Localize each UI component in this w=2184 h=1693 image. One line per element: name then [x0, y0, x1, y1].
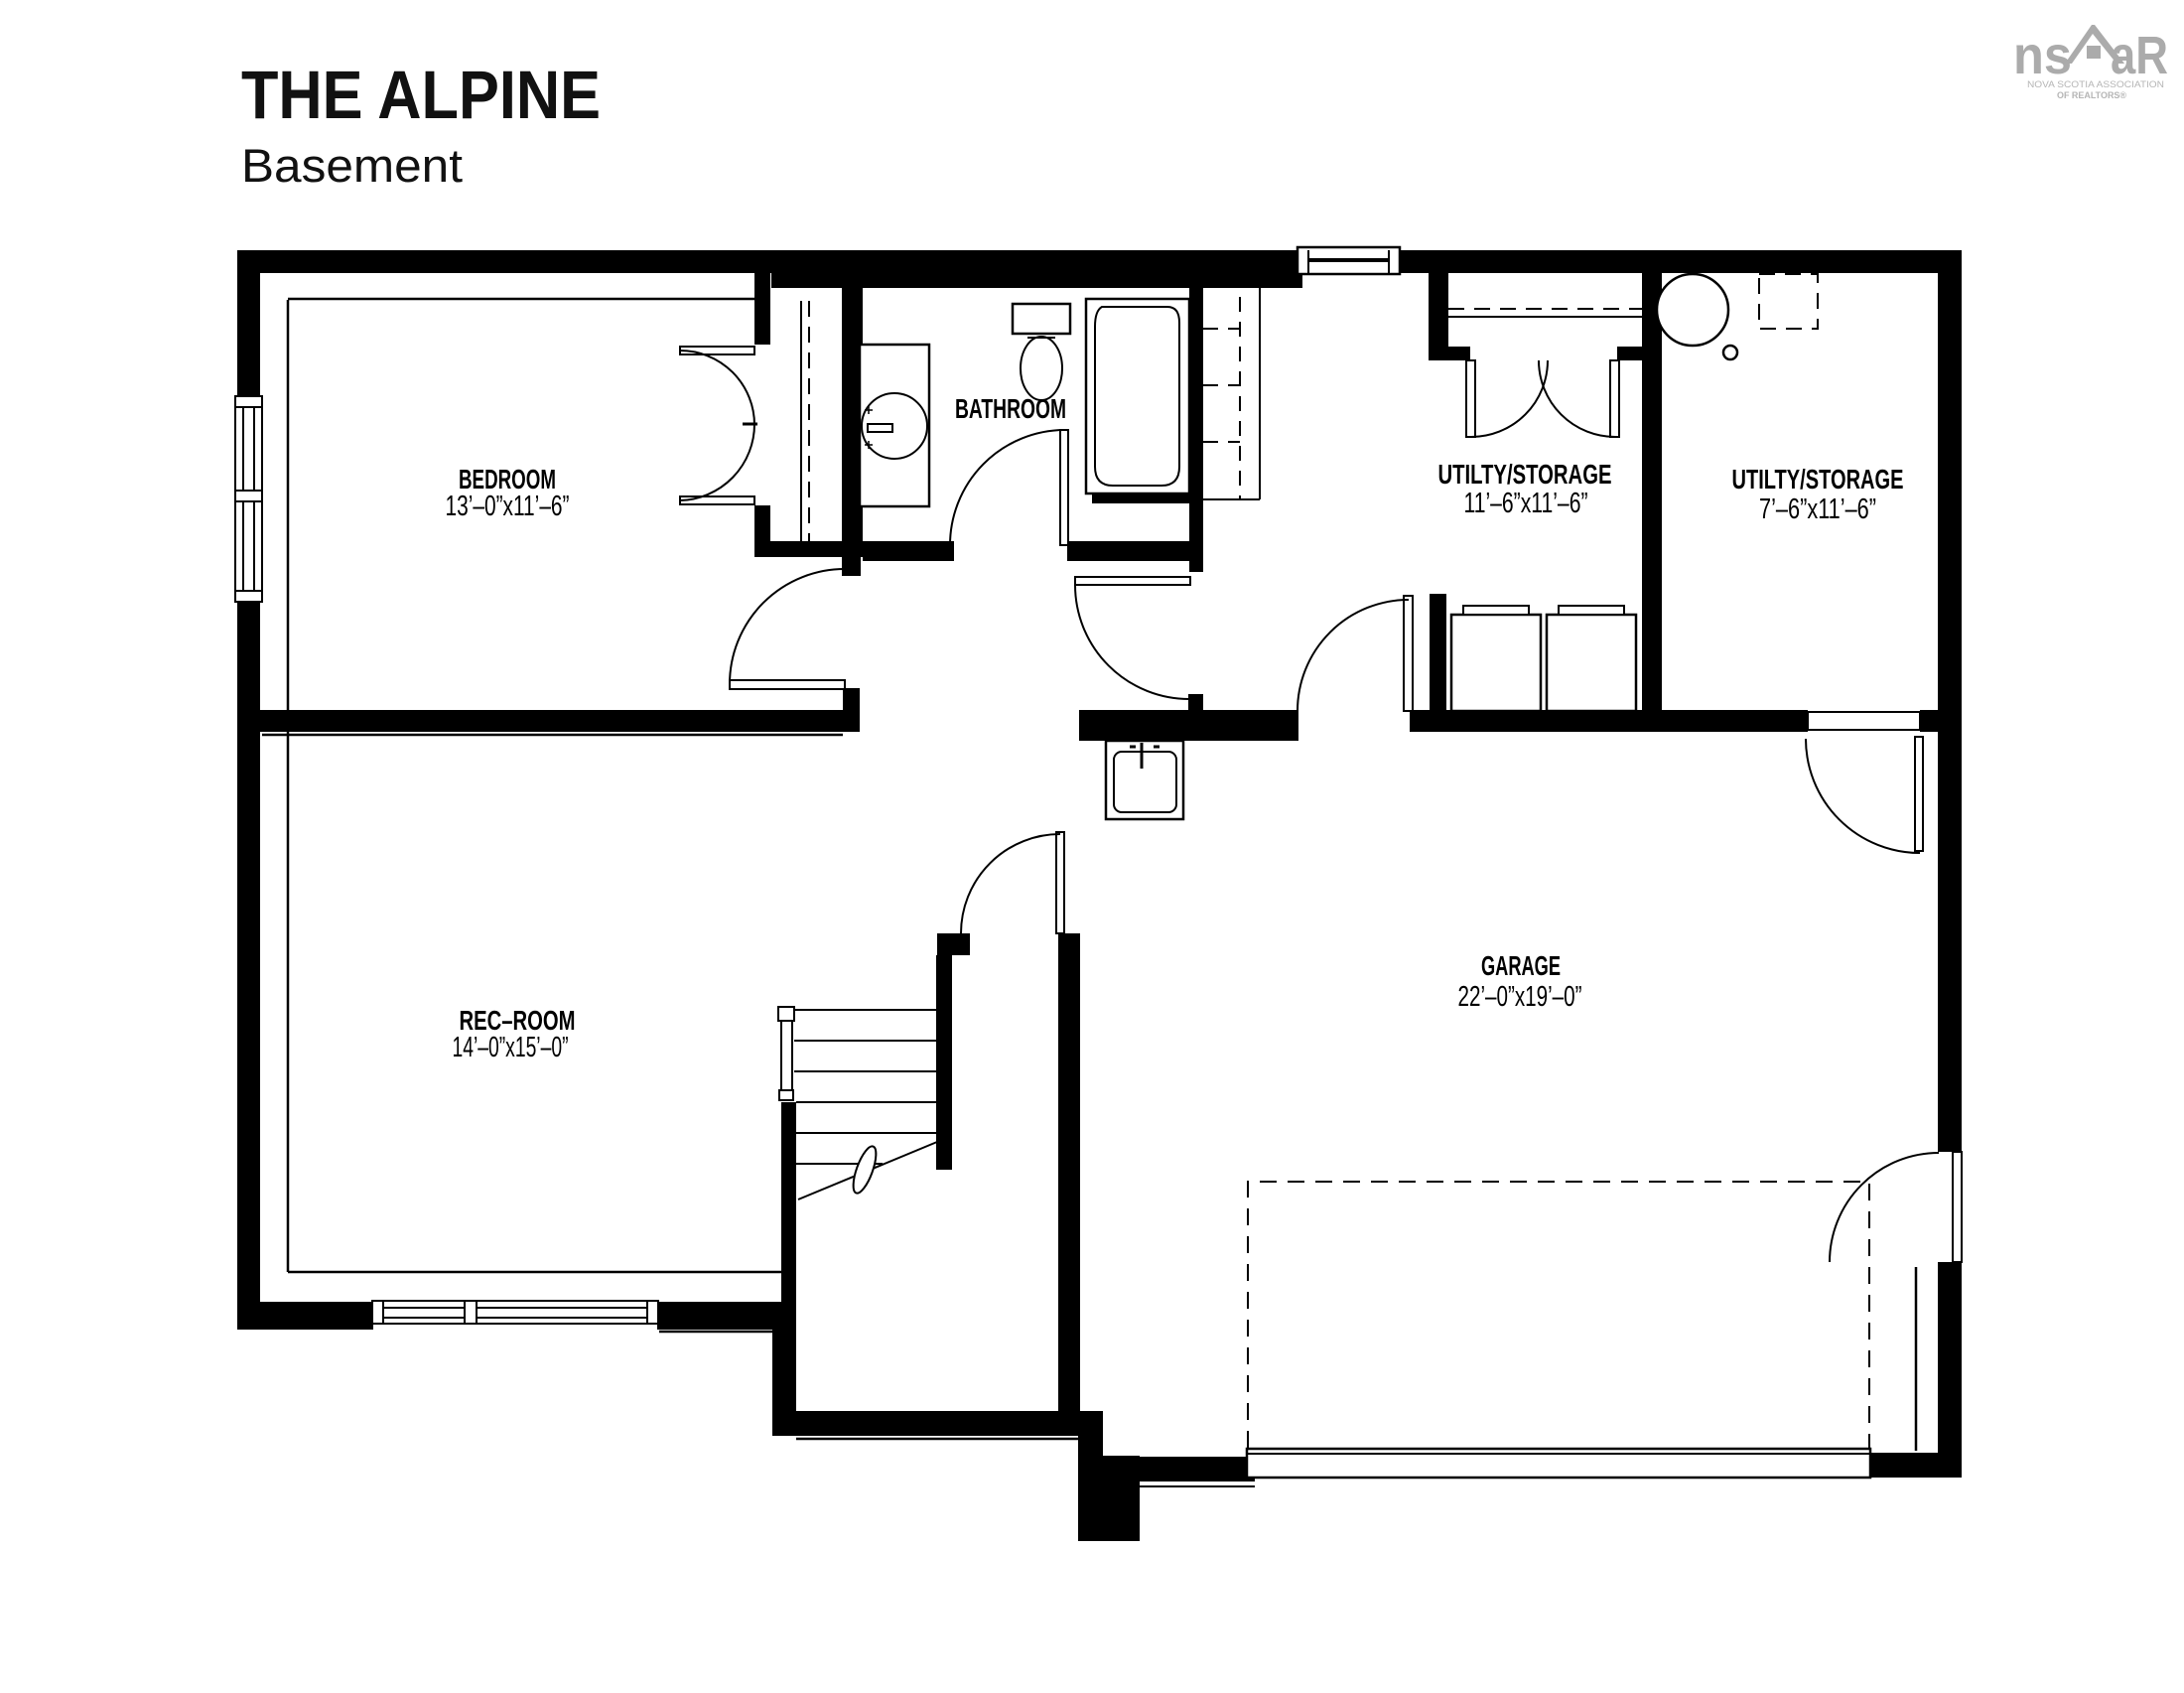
svg-text:7’–6”x11’–6”: 7’–6”x11’–6”: [1759, 494, 1876, 525]
svg-text:UTILTY/STORAGE: UTILTY/STORAGE: [1438, 459, 1612, 490]
svg-text:14’–0”x15’–0”: 14’–0”x15’–0”: [453, 1032, 569, 1063]
svg-text:aR: aR: [2111, 26, 2168, 85]
svg-text:OF REALTORS®: OF REALTORS®: [2057, 90, 2126, 101]
svg-text:GARAGE: GARAGE: [1481, 950, 1561, 981]
svg-text:NOVA SCOTIA ASSOCIATION: NOVA SCOTIA ASSOCIATION: [2027, 79, 2164, 90]
svg-text:22’–0”x19’–0”: 22’–0”x19’–0”: [1458, 981, 1582, 1013]
svg-text:ns: ns: [2013, 26, 2072, 85]
svg-text:11’–6”x11’–6”: 11’–6”x11’–6”: [1464, 488, 1588, 519]
svg-text:13’–0”x11’–6”: 13’–0”x11’–6”: [446, 491, 570, 522]
svg-text:THE ALPINE: THE ALPINE: [241, 57, 601, 133]
svg-text:UTILTY/STORAGE: UTILTY/STORAGE: [1732, 464, 1904, 494]
svg-text:Basement: Basement: [241, 139, 463, 192]
